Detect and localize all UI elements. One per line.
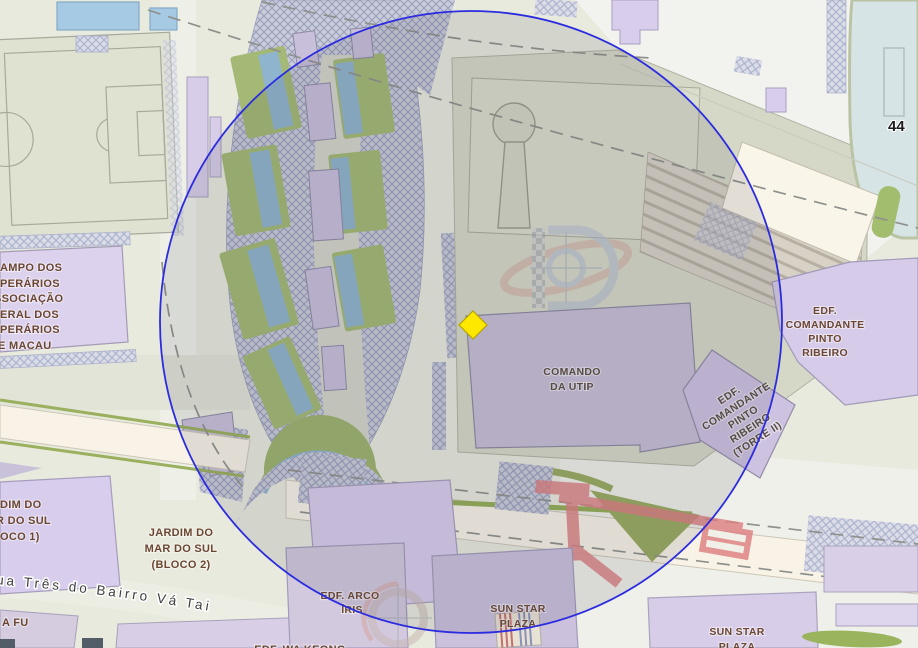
label-pinto-ribeiro: COMANDANTE	[786, 319, 865, 331]
label-jardim-bloco1: OCO 1)	[0, 531, 40, 543]
label-jardim-bloco1: R DO SUL	[0, 515, 51, 527]
label-jardim-bloco1: DIM DO	[0, 499, 42, 511]
building-small	[766, 88, 786, 112]
map-canvas[interactable]: AMPO DOS PERÁRIOS SSOCIAÇÃO ERAL DOS PER…	[0, 0, 918, 648]
label-campo: PERÁRIOS	[0, 323, 60, 336]
map-render: AMPO DOS PERÁRIOS SSOCIAÇÃO ERAL DOS PER…	[0, 0, 918, 648]
label-campo: PERÁRIOS	[0, 277, 60, 290]
label-wa-keong: EDF. WA KEONG	[254, 644, 346, 648]
hatched-strip	[534, 0, 577, 17]
dark-structure	[82, 638, 103, 648]
hatched-structure	[76, 36, 108, 52]
building-corner-block	[824, 546, 918, 592]
swimming-pool	[57, 2, 139, 30]
label-pinto-ribeiro: PINTO	[808, 333, 841, 345]
label-jardim-bloco2: MAR DO SUL	[145, 543, 218, 555]
label-sun-star-east: PLAZA	[719, 641, 756, 648]
label-pinto-ribeiro: EDF.	[813, 305, 837, 317]
football-pitch	[0, 32, 178, 240]
label-sun-star-east: SUN STAR	[709, 626, 764, 638]
building-corner-block	[836, 604, 918, 626]
label-pool-number: 44	[888, 118, 905, 135]
label-va-fu: A FU	[2, 617, 28, 629]
label-campo: ERAL DOS	[0, 309, 59, 321]
label-jardim-bloco2: (BLOCO 2)	[152, 559, 211, 571]
label-jardim-bloco2: JARDIM DO	[149, 527, 214, 539]
label-campo: E MACAU	[0, 340, 51, 352]
label-campo: AMPO DOS	[0, 262, 62, 274]
building-sun-star-east	[648, 592, 818, 648]
label-campo: SSOCIAÇÃO	[0, 292, 63, 305]
label-pinto-ribeiro: RIBEIRO	[802, 347, 848, 359]
hatched-strip	[827, 0, 846, 93]
dark-structure	[0, 639, 15, 648]
